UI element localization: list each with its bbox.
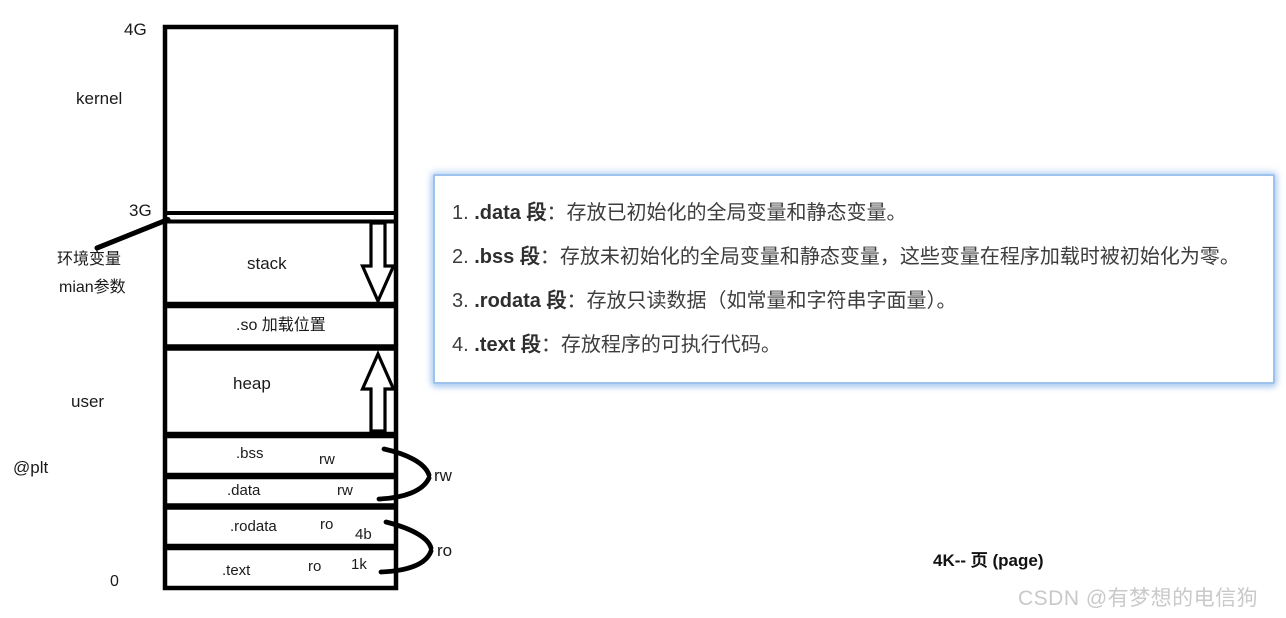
note-description: ：存放未初始化的全局变量和静态变量，这些变量在程序加载时被初始化为零。	[540, 246, 1240, 268]
label-env-var: 环境变量	[57, 251, 121, 269]
note-segment-name: .data 段	[474, 202, 546, 224]
note-number: 4.	[452, 334, 469, 356]
note-description: ：存放程序的可执行代码。	[541, 334, 781, 356]
note-text-segment: 4. .text 段：存放程序的可执行代码。	[452, 323, 1263, 367]
label-main-args: mian参数	[59, 279, 126, 297]
section-rodata: .rodata	[230, 519, 277, 536]
memory-layout-figure: 4G kernel 3G 环境变量 mian参数 user @plt 0 sta…	[0, 0, 1286, 618]
note-data-segment: 1. .data 段：存放已初始化的全局变量和静态变量。	[452, 191, 1263, 235]
section-stack: stack	[247, 255, 287, 274]
label-plt: @plt	[13, 459, 48, 478]
section-heap: heap	[233, 375, 271, 394]
section-data-perm: rw	[337, 483, 353, 500]
section-text: .text	[222, 563, 250, 580]
label-kernel: kernel	[76, 90, 122, 109]
section-bss: .bss	[236, 446, 264, 463]
heap-grow-up-arrow	[363, 354, 394, 431]
section-so: .so 加载位置	[236, 317, 326, 335]
group-label-ro: ro	[437, 542, 452, 561]
rw-brace-lower	[379, 478, 429, 499]
note-segment-name: .text 段	[474, 334, 541, 356]
note-bss-segment: 2. .bss 段：存放未初始化的全局变量和静态变量，这些变量在程序加载时被初始…	[452, 235, 1263, 279]
note-number: 3.	[452, 290, 469, 312]
ro-brace-lower	[381, 551, 431, 572]
note-segment-name: .rodata 段	[474, 290, 566, 312]
section-rodata-size: 4b	[355, 527, 372, 544]
note-rodata-segment: 3. .rodata 段：存放只读数据（如常量和字符串字面量）。	[452, 279, 1263, 323]
label-3g: 3G	[129, 202, 152, 221]
label-zero: 0	[110, 573, 119, 591]
segment-notes-panel: 1. .data 段：存放已初始化的全局变量和静态变量。 2. .bss 段：存…	[433, 174, 1275, 384]
stack-grow-down-arrow	[363, 223, 394, 301]
csdn-watermark: CSDN @有梦想的电信狗	[1018, 582, 1258, 612]
section-text-size: 1k	[351, 557, 367, 574]
note-description: ：存放已初始化的全局变量和静态变量。	[547, 202, 907, 224]
section-bss-perm: rw	[319, 452, 335, 469]
note-segment-name: .bss 段	[474, 246, 540, 268]
group-label-rw: rw	[434, 467, 452, 486]
rw-brace-upper	[384, 449, 429, 475]
page-size-note: 4K-- 页 (page)	[933, 546, 1044, 571]
note-number: 1.	[452, 202, 469, 224]
section-data: .data	[227, 483, 260, 500]
label-4g: 4G	[124, 21, 147, 40]
section-rodata-perm: ro	[320, 517, 333, 534]
note-number: 2.	[452, 246, 469, 268]
label-user: user	[71, 393, 104, 412]
note-description: ：存放只读数据（如常量和字符串字面量）。	[567, 290, 957, 312]
section-text-perm: ro	[308, 559, 321, 576]
env-args-pointer-line	[97, 220, 168, 249]
